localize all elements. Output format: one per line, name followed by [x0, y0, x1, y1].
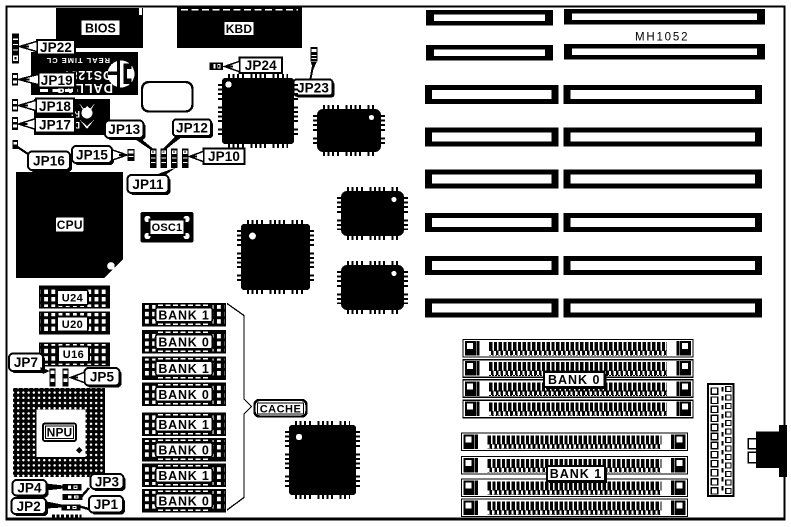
svg-text:U20: U20 — [62, 319, 83, 331]
svg-text:JP12: JP12 — [176, 121, 208, 136]
svg-text:REAL TIME CL: REAL TIME CL — [46, 56, 110, 65]
svg-text:NPU: NPU — [47, 426, 73, 440]
svg-text:BANK 0: BANK 0 — [158, 335, 209, 349]
svg-text:BANK 0: BANK 0 — [548, 373, 601, 387]
svg-text:BANK 1: BANK 1 — [158, 362, 209, 376]
svg-text:JP13: JP13 — [108, 122, 140, 137]
svg-text:BIOS: BIOS — [85, 21, 116, 35]
svg-text:JP7: JP7 — [14, 355, 38, 370]
svg-text:U16: U16 — [63, 349, 84, 361]
svg-text:JP3: JP3 — [95, 474, 120, 489]
svg-text:U24: U24 — [62, 292, 84, 304]
svg-text:MH1052: MH1052 — [635, 32, 689, 44]
svg-text:BANK 1: BANK 1 — [158, 308, 209, 322]
svg-text:JP5: JP5 — [90, 370, 115, 385]
svg-text:JP16: JP16 — [33, 154, 65, 169]
svg-text:BANK 1: BANK 1 — [158, 469, 209, 483]
svg-text:KBD: KBD — [226, 22, 253, 36]
svg-text:BANK 1: BANK 1 — [550, 467, 603, 481]
svg-text:BANK 0: BANK 0 — [158, 443, 209, 457]
svg-text:JP24: JP24 — [245, 58, 277, 73]
svg-text:JP22: JP22 — [40, 40, 72, 55]
svg-text:OSC1: OSC1 — [152, 222, 183, 234]
svg-text:JP4: JP4 — [17, 481, 42, 496]
svg-text:JP19: JP19 — [41, 73, 73, 88]
svg-text:JP17: JP17 — [39, 118, 71, 133]
svg-text:BANK 0: BANK 0 — [158, 388, 209, 402]
svg-text:JP1: JP1 — [94, 497, 119, 512]
svg-text:BANK 0: BANK 0 — [158, 494, 209, 508]
svg-text:JP11: JP11 — [132, 177, 164, 192]
svg-text:CACHE: CACHE — [260, 403, 302, 415]
svg-text:JP10: JP10 — [208, 149, 240, 164]
svg-text:CPU: CPU — [57, 218, 83, 232]
svg-text:JP23: JP23 — [297, 80, 329, 95]
svg-text:JP15: JP15 — [76, 147, 108, 162]
svg-text:JP2: JP2 — [17, 499, 41, 514]
svg-text:JP18: JP18 — [39, 99, 71, 114]
svg-text:BANK 1: BANK 1 — [158, 418, 209, 432]
